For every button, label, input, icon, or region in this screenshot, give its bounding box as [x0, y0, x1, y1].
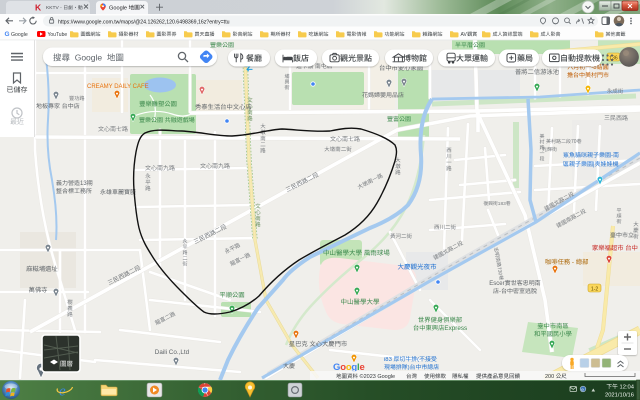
- svg-text:Google: Google: [109, 5, 129, 11]
- svg-text:Express: Express: [444, 325, 467, 332]
- svg-text:): ): [408, 365, 410, 371]
- svg-text:136: 136: [609, 56, 618, 62]
- svg-text:2021/10/16: 2021/10/16: [605, 393, 634, 399]
- svg-text:183: 183: [498, 201, 506, 207]
- svg-text:70: 70: [571, 139, 577, 145]
- svg-text:Google: Google: [70, 53, 107, 63]
- svg-text:e: e: [581, 388, 584, 393]
- svg-text:G: G: [5, 31, 10, 38]
- svg-text:K: K: [35, 3, 42, 13]
- svg-text:KKTV -: KKTV -: [46, 5, 63, 11]
- svg-text:12:04: 12:04: [618, 385, 635, 391]
- svg-text:AV: AV: [461, 32, 468, 38]
- svg-text:-: -: [570, 259, 576, 266]
- svg-text:©2023 Google: ©2023 Google: [358, 373, 395, 380]
- svg-text:13: 13: [80, 181, 87, 187]
- svg-text:i83: i83: [384, 357, 394, 363]
- svg-text:(: (: [417, 357, 419, 363]
- svg-text:YouTube: YouTube: [48, 32, 68, 38]
- svg-text:Google: Google: [11, 32, 28, 38]
- svg-text:-: -: [611, 153, 613, 159]
- svg-text:-: -: [499, 289, 501, 295]
- svg-text:1-2: 1-2: [591, 287, 598, 293]
- svg-text:https://www.google.com.tw/maps: https://www.google.com.tw/maps/@24.12626…: [58, 20, 230, 26]
- svg-text:CREAMY DAILY CAFE: CREAMY DAILY CAFE: [87, 84, 149, 90]
- svg-text:Daili Co.,Ltd: Daili Co.,Ltd: [155, 349, 190, 356]
- svg-text:Escer: Escer: [489, 281, 504, 287]
- svg-text:200: 200: [545, 374, 556, 380]
- svg-text:e: e: [59, 384, 66, 400]
